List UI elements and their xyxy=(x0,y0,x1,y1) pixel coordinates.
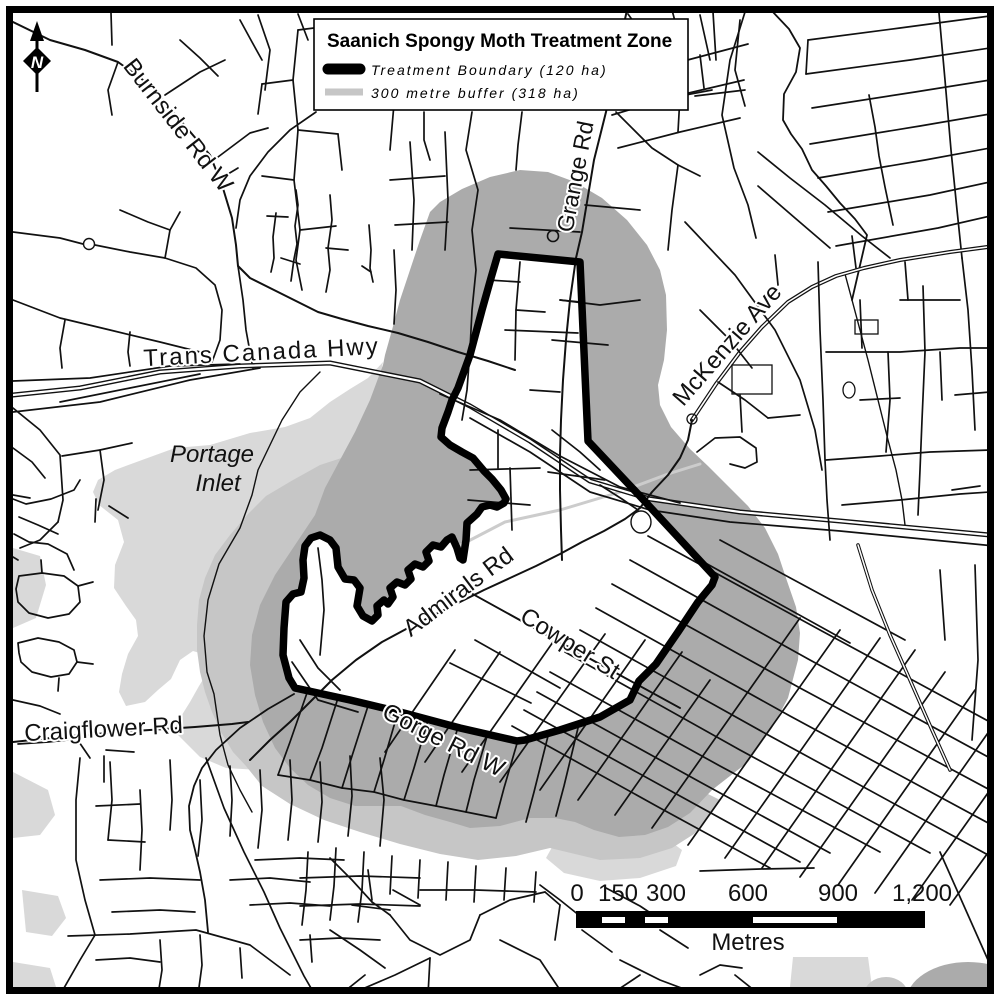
svg-text:Inlet: Inlet xyxy=(195,470,242,497)
svg-text:150: 150 xyxy=(598,880,638,907)
svg-text:1,200: 1,200 xyxy=(892,880,952,907)
svg-text:Portage: Portage xyxy=(170,441,254,468)
svg-text:300 metre buffer (318 ha): 300 metre buffer (318 ha) xyxy=(371,85,580,101)
svg-text:Treatment Boundary (120 ha): Treatment Boundary (120 ha) xyxy=(371,62,608,78)
svg-text:600: 600 xyxy=(728,880,768,907)
svg-text:300: 300 xyxy=(646,880,686,907)
svg-text:Saanich Spongy Moth Treatment: Saanich Spongy Moth Treatment Zone xyxy=(327,31,672,52)
svg-text:N: N xyxy=(31,53,44,72)
svg-text:900: 900 xyxy=(818,880,858,907)
svg-text:0: 0 xyxy=(570,880,583,907)
svg-text:Metres: Metres xyxy=(711,929,784,956)
